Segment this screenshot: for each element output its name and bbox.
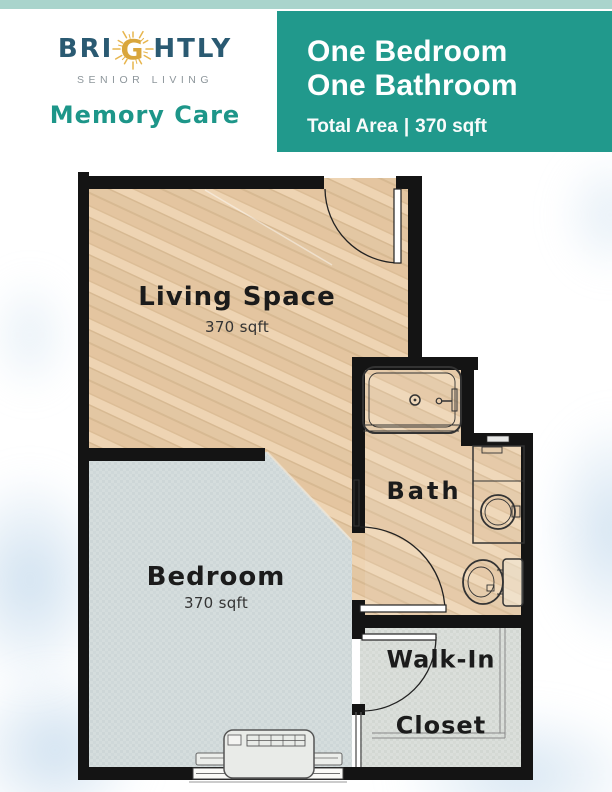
wall-closet-partition-cap — [352, 704, 365, 715]
walk-in-closet-label: Walk-In Closet — [387, 611, 496, 776]
brand-tagline: SENIOR LIVING — [28, 74, 262, 86]
wall-shower-right — [461, 357, 474, 446]
brand-name-pre: BRI — [58, 34, 114, 64]
brand-name: BRI — [28, 26, 262, 72]
closet-label-line1: Walk-In — [387, 644, 496, 677]
brochure-page: Living Space 370 sqft Bedroom 370 sqft B… — [0, 0, 612, 792]
brand-logo: BRI — [28, 26, 262, 129]
living-space-label: Living Space — [138, 282, 335, 312]
living-space-area: 370 sqft — [205, 318, 269, 336]
unit-total-area: Total Area|370 sqft — [307, 116, 612, 138]
bedroom-label: Bedroom — [147, 562, 286, 592]
sun-icon: G — [110, 26, 156, 72]
top-accent-strip — [0, 0, 612, 9]
bath-label: Bath — [386, 477, 461, 505]
brand-program: Memory Care — [28, 101, 262, 129]
wall-left — [78, 172, 89, 780]
wall-living-right — [408, 176, 422, 370]
unit-title-line1: One Bedroom — [307, 35, 612, 69]
closet-label-line2: Closet — [387, 710, 496, 743]
unit-title: One Bedroom One Bathroom — [307, 35, 612, 103]
entry-door-leaf — [394, 189, 401, 263]
wall-vent — [487, 436, 509, 442]
bedroom-area: 370 sqft — [184, 594, 248, 612]
wall-bedroom-divider — [78, 448, 265, 461]
unit-area-label: Total Area — [307, 116, 398, 137]
wall-top-a — [78, 176, 324, 189]
unit-card: One Bedroom One Bathroom Total Area|370 … — [277, 11, 612, 152]
unit-area-separator: | — [404, 116, 409, 137]
ac-display — [228, 735, 241, 745]
wall-right — [521, 433, 533, 780]
unit-area-value: 370 sqft — [415, 116, 487, 137]
unit-title-line2: One Bathroom — [307, 69, 612, 103]
brand-name-post: HTLY — [153, 34, 232, 64]
sun-letter-g: G — [121, 33, 146, 66]
